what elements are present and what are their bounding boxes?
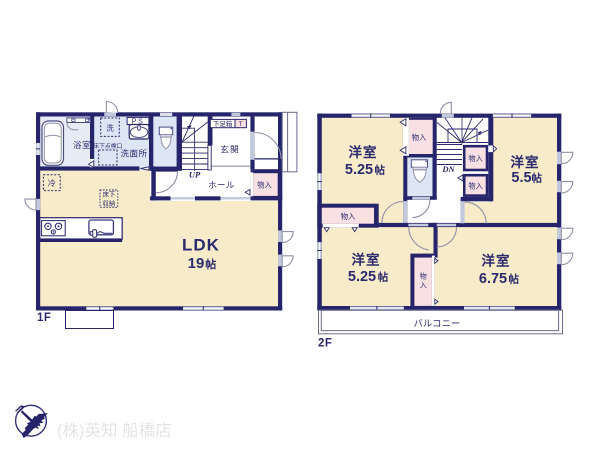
- svg-text:物入: 物入: [257, 180, 271, 189]
- svg-text:1F: 1F: [37, 312, 51, 324]
- svg-text:洋室: 洋室: [352, 252, 381, 268]
- svg-text:帖: 帖: [509, 273, 520, 286]
- svg-text:バルコニー: バルコニー: [414, 318, 461, 328]
- svg-text:洗: 洗: [106, 122, 114, 132]
- svg-text:帖: 帖: [205, 257, 216, 271]
- svg-text:洗面所: 洗面所: [120, 149, 147, 159]
- svg-text:19: 19: [188, 255, 205, 272]
- svg-text:帖: 帖: [375, 164, 386, 177]
- svg-text:物入: 物入: [468, 154, 482, 163]
- svg-text:浴室: 浴室: [73, 140, 91, 150]
- svg-text:(株)英知 船橋店: (株)英知 船橋店: [57, 421, 172, 440]
- svg-text:物入: 物入: [468, 181, 482, 190]
- svg-text:帖: 帖: [532, 171, 543, 184]
- svg-text:6.75: 6.75: [479, 271, 507, 287]
- svg-text:物: 物: [420, 272, 427, 281]
- svg-text:LDK: LDK: [182, 236, 220, 255]
- svg-text:床下点検口: 床下点検口: [93, 142, 122, 150]
- svg-text:DN: DN: [441, 164, 455, 174]
- svg-text:物入: 物入: [412, 133, 427, 142]
- svg-text:UP: UP: [189, 170, 201, 180]
- svg-text:帖: 帖: [378, 271, 389, 284]
- svg-text:洋室: 洋室: [511, 154, 540, 170]
- svg-text:5.25: 5.25: [345, 162, 373, 178]
- svg-text:入: 入: [420, 282, 427, 290]
- svg-text:冷: 冷: [48, 178, 56, 188]
- svg-text:T: T: [239, 121, 243, 128]
- svg-text:収納: 収納: [103, 198, 116, 207]
- svg-text:下足箱: 下足箱: [213, 119, 233, 128]
- svg-text:2F: 2F: [318, 338, 332, 350]
- svg-text:洋室: 洋室: [349, 144, 378, 160]
- svg-text:物入: 物入: [341, 212, 356, 221]
- svg-text:5.25: 5.25: [348, 269, 376, 285]
- svg-text:玄関: 玄関: [220, 144, 240, 155]
- svg-text:床下: 床下: [103, 190, 116, 199]
- svg-text:5.5: 5.5: [511, 170, 531, 186]
- svg-text:ホール: ホール: [208, 180, 235, 190]
- svg-text:洋室: 洋室: [482, 252, 511, 268]
